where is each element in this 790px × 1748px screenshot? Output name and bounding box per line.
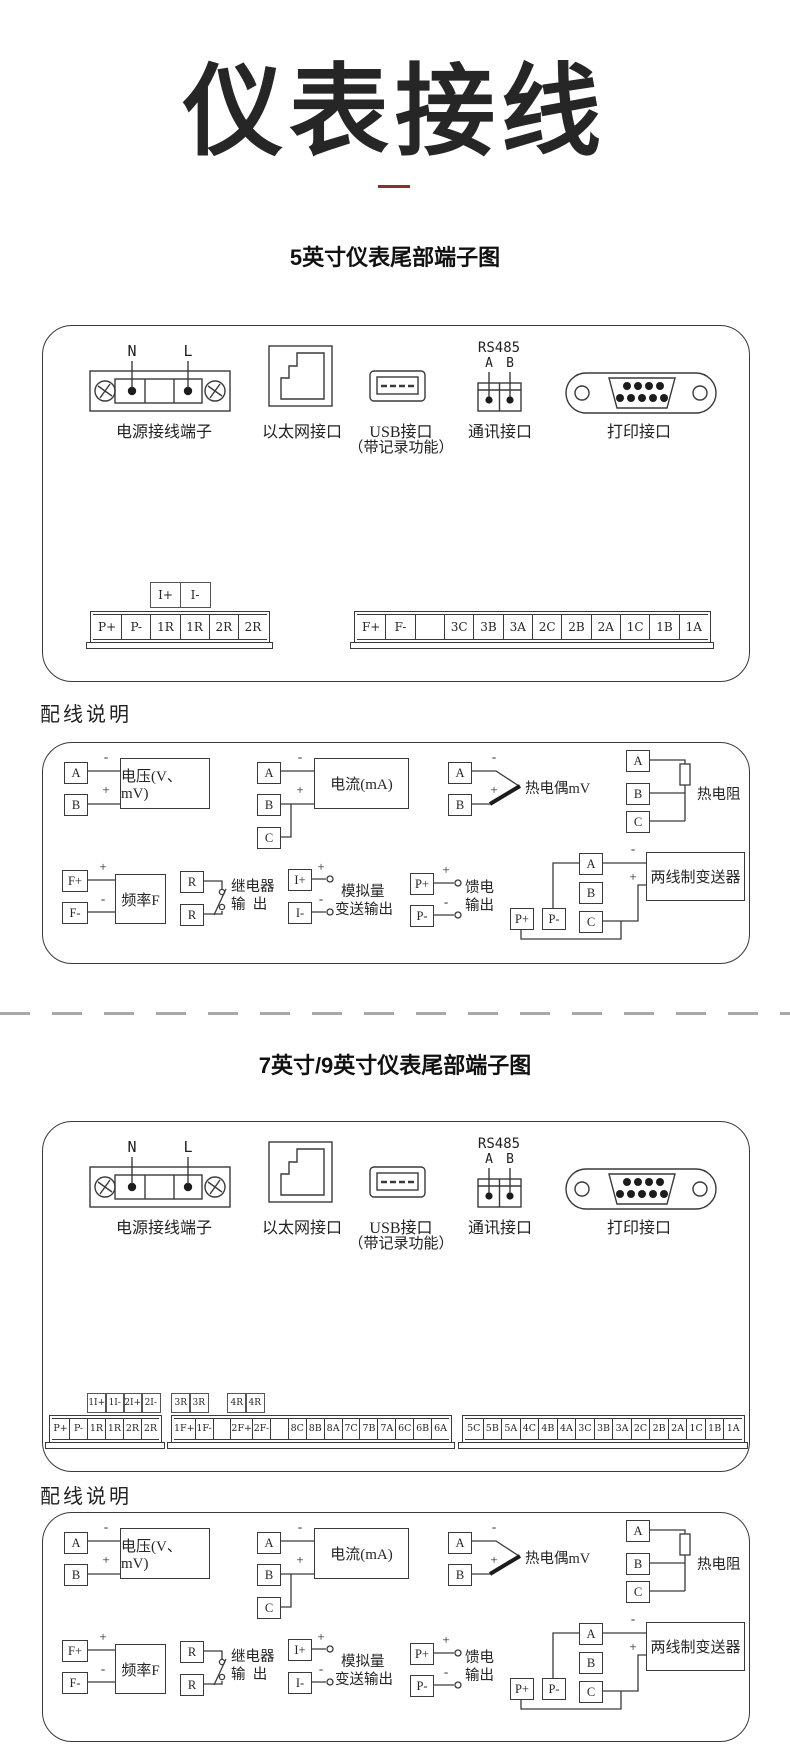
terminal-i-plus: I+	[288, 1639, 312, 1661]
terminal-cell: 1A	[723, 1419, 742, 1439]
terminal-b: B	[448, 794, 472, 816]
terminal-cell: 1C	[620, 615, 649, 639]
terminal-p-plus: P+	[510, 908, 534, 930]
terminal-a: A	[579, 1623, 603, 1645]
analog-output-label-line2: 变送输出	[335, 898, 393, 919]
rear-panel-ports-graphic	[43, 326, 749, 418]
print-label: 打印接口	[589, 1214, 689, 1238]
terminal-cell: 8A	[324, 1419, 342, 1439]
comm-label: 通讯接口	[450, 418, 550, 442]
terminal-cell: 2B	[561, 615, 590, 639]
terminal-cell: I-	[180, 582, 211, 608]
terminal-cell: 1R	[87, 1419, 105, 1439]
db9-print-port-icon	[566, 1169, 716, 1209]
polarity-minus: -	[293, 1519, 307, 1535]
terminal-p-minus: P-	[542, 908, 566, 930]
wiring-instructions-panel: A B - + 电压(V、mV) A B C - + 电流(mA) A B - …	[43, 1513, 749, 1733]
polarity-minus: -	[314, 1661, 328, 1677]
polarity-plus: +	[99, 782, 113, 798]
terminal-cell	[415, 615, 444, 639]
rtd-label: 热电阻	[697, 1553, 741, 1574]
aux-terminal-strip-relay3: 3R3R	[171, 1393, 209, 1413]
polarity-minus: -	[439, 1664, 453, 1680]
rtd-label: 热电阻	[697, 783, 741, 804]
terminal-cell: F+	[357, 615, 385, 639]
rs485-a-label: A	[481, 356, 497, 371]
terminal-cell: 6B	[413, 1419, 431, 1439]
polarity-plus: +	[314, 1629, 328, 1645]
seven-nine-inch-wiring-panel: A B - + 电压(V、mV) A B C - + 电流(mA) A B - …	[42, 1512, 750, 1742]
rear-panel-ports-graphic	[43, 1122, 749, 1214]
terminal-cell: 2I-	[141, 1393, 161, 1413]
terminal-cell: P-	[121, 615, 150, 639]
strip-base-plate	[350, 642, 714, 649]
terminal-cell: 1R	[150, 615, 179, 639]
terminal-cell: 2C	[532, 615, 561, 639]
five-inch-wiring-panel: A B - + 电压(V、mV) A B C - + 电流(mA) A B - …	[42, 742, 750, 964]
terminal-c: C	[257, 827, 281, 849]
terminal-cell: 3B	[594, 1419, 613, 1439]
polarity-plus: +	[96, 1629, 110, 1645]
terminal-cell: 3A	[612, 1419, 631, 1439]
relay-output-label-line2: 输 出	[231, 1663, 267, 1684]
terminal-cell: 2B	[649, 1419, 668, 1439]
seven-nine-inch-rear-panel: N L RS485 A B 电源接线端子 以太网接口 USB接口 （带记录功能）…	[42, 1121, 750, 1472]
terminal-cell: 1I+	[87, 1393, 107, 1413]
frequency-input-label: 频率F	[115, 1644, 166, 1694]
terminal-c: C	[579, 911, 603, 933]
polarity-plus: +	[99, 1552, 113, 1568]
voltage-input-label: 电压(V、mV)	[120, 758, 210, 809]
ethernet-port-icon	[269, 1142, 332, 1202]
terminal-cell	[213, 1419, 231, 1439]
rs485-terminal-graphic	[478, 1168, 521, 1207]
ports-row: N L RS485 A B 电源接线端子 以太网接口 USB接口 （带记录功能）…	[43, 326, 749, 476]
terminal-b: B	[579, 882, 603, 904]
frequency-input-label: 频率F	[115, 874, 166, 924]
terminal-cell: 5A	[501, 1419, 520, 1439]
terminal-a: A	[626, 1520, 650, 1542]
title-accent-dash	[378, 185, 410, 188]
terminal-cell: 1F+	[174, 1419, 195, 1439]
terminal-cell: 6A	[431, 1419, 449, 1439]
terminal-cell: 1R	[180, 615, 209, 639]
usb-sublabel: （带记录功能）	[341, 1232, 461, 1253]
terminal-cell: 2A	[668, 1419, 687, 1439]
terminal-cell: P-	[69, 1419, 87, 1439]
terminal-a: A	[257, 1532, 281, 1554]
terminal-c: C	[626, 1581, 650, 1603]
terminal-r: R	[180, 904, 204, 926]
terminal-a: A	[64, 762, 88, 784]
terminal-cell: 1I-	[105, 1393, 125, 1413]
terminal-cell: 1A	[679, 615, 708, 639]
db9-print-port-icon	[566, 373, 716, 413]
ports-row: N L RS485 A B 电源接线端子 以太网接口 USB接口 （带记录功能）…	[43, 1122, 749, 1272]
n-label: N	[123, 1138, 141, 1156]
polarity-minus: -	[439, 894, 453, 910]
polarity-minus: -	[96, 891, 110, 907]
terminal-cell: I+	[150, 582, 181, 608]
power-terminal-graphic	[90, 361, 230, 411]
terminal-cell: 3R	[189, 1393, 209, 1413]
polarity-minus: -	[487, 749, 501, 765]
wiring-heading-2: 配线说明	[40, 1480, 132, 1509]
section1-title: 5英寸仪表尾部端子图	[0, 240, 790, 272]
terminal-cell: 4A	[557, 1419, 576, 1439]
terminal-c: C	[626, 811, 650, 833]
polarity-minus: -	[99, 1519, 113, 1535]
terminal-cell: F-	[385, 615, 414, 639]
terminal-b: B	[257, 794, 281, 816]
terminal-b: B	[257, 1564, 281, 1586]
polarity-minus: -	[626, 1611, 640, 1627]
polarity-minus: -	[293, 749, 307, 765]
terminal-cell: 8B	[306, 1419, 324, 1439]
polarity-minus: -	[314, 891, 328, 907]
terminal-cell: P+	[93, 615, 121, 639]
usb-port-icon	[370, 1167, 425, 1197]
terminal-strip-group1: P+P-1R1R2R2R	[49, 1415, 162, 1449]
terminal-strip-group3: 5C5B5A4C4B4A3C3B3A2C2B2A1C1B1A	[462, 1415, 745, 1449]
usb-sublabel: （带记录功能）	[341, 436, 461, 457]
terminal-a: A	[64, 1532, 88, 1554]
section2-title: 7英寸/9英寸仪表尾部端子图	[0, 1048, 790, 1080]
terminal-r: R	[180, 1674, 204, 1696]
aux-terminal-strip: I+I-	[150, 582, 211, 608]
five-inch-rear-panel: N L RS485 A B 电源接线端子 以太网接口 USB接口 （带记录功能）…	[42, 325, 750, 682]
terminal-cell: 7B	[359, 1419, 377, 1439]
rs485-b-label: B	[502, 1152, 518, 1167]
wiring-heading-1: 配线说明	[40, 698, 132, 727]
polarity-plus: +	[96, 859, 110, 875]
strip-base-plate	[86, 642, 273, 649]
current-input-label: 电流(mA)	[314, 758, 409, 809]
terminal-strip-right: F+F-3C3B3A2C2B2A1C1B1A	[354, 611, 711, 649]
terminal-c: C	[257, 1597, 281, 1619]
feed-output-label-line2: 输出	[465, 1664, 494, 1685]
terminal-strip-group2: 1F+1F-2F+2F-8C8B8A7C7B7A6C6B6A	[171, 1415, 452, 1449]
voltage-input-label: 电压(V、mV)	[120, 1528, 210, 1579]
terminal-i-minus: I-	[288, 902, 312, 924]
ethernet-port-icon	[269, 346, 332, 406]
usb-port-icon	[370, 371, 425, 401]
terminal-cell: 3C	[444, 615, 473, 639]
terminal-a: A	[448, 1532, 472, 1554]
terminal-cell: 2I+	[123, 1393, 143, 1413]
terminal-strip-left: P+P-1R1R2R2R	[90, 611, 270, 649]
l-label: L	[179, 1138, 197, 1156]
terminal-cell: 1B	[649, 615, 678, 639]
power-terminal-label: 电源接线端子	[104, 1214, 224, 1238]
terminal-p-minus: P-	[410, 1675, 434, 1697]
polarity-minus: -	[626, 841, 640, 857]
terminal-a: A	[257, 762, 281, 784]
terminal-cell: 3A	[503, 615, 532, 639]
terminal-p-plus: P+	[410, 1643, 434, 1665]
terminal-cell: 2A	[591, 615, 620, 639]
polarity-plus: +	[439, 1632, 453, 1648]
two-wire-transmitter-label: 两线制变送器	[646, 1622, 745, 1671]
terminal-cell: 2R	[123, 1419, 141, 1439]
polarity-plus: +	[487, 782, 501, 798]
terminal-cell: 2R	[141, 1419, 159, 1439]
terminal-f-plus: F+	[62, 870, 88, 892]
terminal-cell: 1B	[705, 1419, 724, 1439]
terminal-cell: 4C	[520, 1419, 539, 1439]
terminal-cell: 7A	[377, 1419, 395, 1439]
terminal-i-plus: I+	[288, 869, 312, 891]
polarity-plus: +	[487, 1552, 501, 1568]
terminal-cell: 1C	[686, 1419, 705, 1439]
relay-output-label-line2: 输 出	[231, 893, 267, 914]
terminal-b: B	[448, 1564, 472, 1586]
terminal-cell: 5C	[465, 1419, 483, 1439]
two-wire-transmitter-label: 两线制变送器	[646, 852, 745, 901]
strip-base-plate	[45, 1442, 165, 1449]
terminal-cell: 3B	[473, 615, 502, 639]
polarity-plus: +	[293, 1552, 307, 1568]
terminal-cell: 4R	[227, 1393, 247, 1413]
rs485-label: RS485	[469, 1136, 529, 1152]
polarity-minus: -	[487, 1519, 501, 1535]
comm-label: 通讯接口	[450, 1214, 550, 1238]
polarity-plus: +	[626, 1639, 640, 1655]
aux-terminal-strip-relay4: 4R4R	[227, 1393, 265, 1413]
terminal-p-minus: P-	[410, 905, 434, 927]
polarity-minus: -	[96, 1661, 110, 1677]
terminal-cell: 2R	[209, 615, 238, 639]
terminal-cell: 3C	[575, 1419, 594, 1439]
terminal-f-minus: F-	[62, 902, 88, 924]
terminal-cell: 1R	[105, 1419, 123, 1439]
terminal-r: R	[180, 871, 204, 893]
strip-base-plate	[167, 1442, 455, 1449]
terminal-p-minus: P-	[542, 1678, 566, 1700]
terminal-b: B	[626, 783, 650, 805]
polarity-plus: +	[314, 859, 328, 875]
polarity-plus: +	[626, 869, 640, 885]
terminal-cell: 5B	[483, 1419, 502, 1439]
section-divider	[0, 1012, 790, 1015]
n-label: N	[123, 342, 141, 360]
terminal-cell: 2R	[238, 615, 267, 639]
l-label: L	[179, 342, 197, 360]
terminal-cell: 2C	[631, 1419, 650, 1439]
rs485-a-label: A	[481, 1152, 497, 1167]
terminal-cell: 3R	[171, 1393, 191, 1413]
aux-terminal-strip-current: 1I+1I-2I+2I-	[87, 1393, 161, 1413]
rs485-b-label: B	[502, 356, 518, 371]
polarity-minus: -	[99, 749, 113, 765]
terminal-a: A	[579, 853, 603, 875]
power-terminal-graphic	[90, 1157, 230, 1207]
terminal-cell: 2F+	[230, 1419, 252, 1439]
terminal-cell: 4B	[538, 1419, 557, 1439]
terminal-a: A	[626, 750, 650, 772]
terminal-f-plus: F+	[62, 1640, 88, 1662]
terminal-cell: 8C	[288, 1419, 306, 1439]
terminal-cell: P+	[52, 1419, 69, 1439]
terminal-cell: 6C	[395, 1419, 413, 1439]
feed-output-label-line2: 输出	[465, 894, 494, 915]
terminal-b: B	[64, 1564, 88, 1586]
terminal-c: C	[579, 1681, 603, 1703]
power-terminal-label: 电源接线端子	[104, 418, 224, 442]
terminal-b: B	[64, 794, 88, 816]
polarity-plus: +	[293, 782, 307, 798]
terminal-cell: 1F-	[195, 1419, 213, 1439]
terminal-i-minus: I-	[288, 1672, 312, 1694]
terminal-p-plus: P+	[510, 1678, 534, 1700]
terminal-cell: 7C	[342, 1419, 360, 1439]
terminal-cell	[270, 1419, 288, 1439]
analog-output-label-line2: 变送输出	[335, 1668, 393, 1689]
current-input-label: 电流(mA)	[314, 1528, 409, 1579]
terminal-b: B	[579, 1652, 603, 1674]
terminal-a: A	[448, 762, 472, 784]
strip-base-plate	[458, 1442, 748, 1449]
wiring-instructions-panel: A B - + 电压(V、mV) A B C - + 电流(mA) A B - …	[43, 743, 749, 963]
instrument-wiring-page: 仪表接线 5英寸仪表尾部端子图	[0, 0, 790, 1748]
terminal-b: B	[626, 1553, 650, 1575]
print-label: 打印接口	[589, 418, 689, 442]
terminal-p-plus: P+	[410, 873, 434, 895]
terminal-f-minus: F-	[62, 1672, 88, 1694]
polarity-plus: +	[439, 862, 453, 878]
terminal-cell: 2F-	[252, 1419, 270, 1439]
rs485-terminal-graphic	[478, 372, 521, 411]
terminal-r: R	[180, 1641, 204, 1663]
thermocouple-label: 热电偶mV	[525, 777, 590, 798]
page-title: 仪表接线	[0, 30, 790, 175]
terminal-cell: 4R	[245, 1393, 265, 1413]
rs485-label: RS485	[469, 340, 529, 356]
thermocouple-label: 热电偶mV	[525, 1547, 590, 1568]
